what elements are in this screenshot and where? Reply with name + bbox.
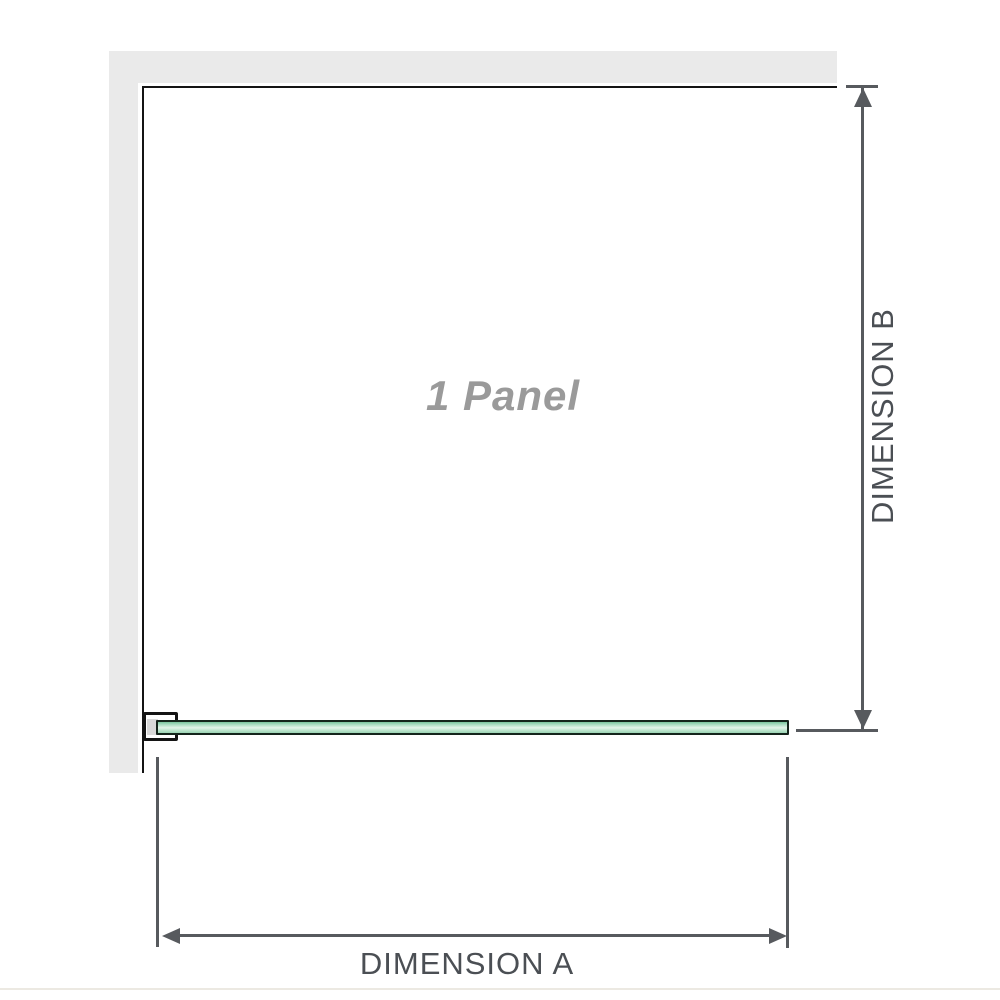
panel-count-watermark: 1 Panel: [426, 372, 580, 420]
dimension-b-label: DIMENSION B: [865, 308, 901, 524]
arrow-down-icon: [854, 710, 872, 729]
dimension-a-line: [170, 934, 780, 937]
glass-panel-top-view: [156, 720, 789, 735]
arrow-left-icon: [162, 928, 180, 944]
dimension-a-extension-left: [156, 757, 159, 947]
shower-panel-diagram: 1 Panel DIMENSION B DIMENSION A: [0, 0, 1000, 1000]
page-baseline-rule: [0, 988, 1000, 990]
arrow-up-icon: [854, 88, 872, 107]
dimension-a-extension-right: [786, 757, 789, 948]
panel-top-edge: [143, 86, 837, 88]
arrow-right-icon: [769, 928, 787, 944]
dimension-b-bottom-tick: [796, 729, 878, 732]
wall-top-strip: [109, 51, 837, 83]
panel-left-edge: [142, 86, 144, 773]
wall-left-strip: [109, 51, 138, 773]
dimension-b-line: [861, 88, 864, 731]
dimension-a-label: DIMENSION A: [360, 946, 574, 982]
